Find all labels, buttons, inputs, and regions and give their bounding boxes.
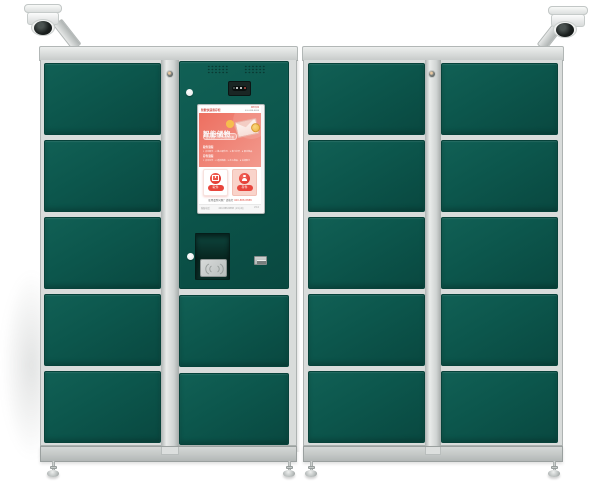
- locker-door[interactable]: [44, 294, 161, 366]
- smart-locker-product-image: 智能快递寄存柜 服务热线 400-888-8888 智能储物: [0, 0, 613, 489]
- screen-brand-text: 智能快递寄存柜: [201, 108, 221, 112]
- base-tab: [425, 447, 441, 455]
- screen-header: 智能快递寄存柜 服务热线 400-888-8888: [199, 106, 261, 113]
- locker-door[interactable]: [308, 217, 425, 289]
- locker-door[interactable]: [441, 140, 558, 212]
- locker-door[interactable]: [308, 63, 425, 135]
- speaker-vent-left: [207, 65, 229, 74]
- notice-text: 使用遇到问题？请拨打: [208, 199, 233, 202]
- screen-hero-banner: 智能储物 安全便捷 · 24小时自助存取 取件流程 1 点击取件 · 2 输入取…: [199, 113, 261, 167]
- right-cabinet-left-door-column: [308, 61, 425, 445]
- locker-door[interactable]: [179, 373, 289, 445]
- deposit-button[interactable]: 存件: [237, 185, 253, 191]
- screen-footer: 客服电话 400-888-8888（24小时） V2.0: [199, 204, 261, 210]
- deposit-steps-label: 存件流程: [203, 154, 257, 158]
- touchscreen[interactable]: 智能快递寄存柜 服务热线 400-888-8888 智能储物: [197, 104, 265, 214]
- deposit-icon-circle: [239, 173, 250, 184]
- locker-door[interactable]: [44, 140, 161, 212]
- speaker-vent-right: [244, 65, 266, 74]
- locker-door[interactable]: [308, 294, 425, 366]
- status-led: [244, 87, 246, 89]
- footer-center: 400-888-8888（24小时）: [218, 206, 245, 210]
- card-slot[interactable]: [254, 256, 267, 265]
- locker-door[interactable]: [308, 140, 425, 212]
- footer-left: 客服电话: [201, 206, 210, 210]
- base-tab: [161, 447, 179, 455]
- led-dot: [236, 87, 238, 89]
- leveling-foot: [282, 461, 296, 478]
- action-cards: 取件 存件: [199, 167, 261, 198]
- keyhole: [429, 71, 435, 77]
- locker-door[interactable]: [179, 295, 289, 367]
- control-column-doors: [179, 289, 289, 446]
- locker-door[interactable]: [441, 63, 558, 135]
- led-dot: [240, 87, 242, 89]
- indicator-dot: [186, 89, 193, 96]
- locker-door[interactable]: [441, 294, 558, 366]
- right-divider-strip: [425, 60, 441, 446]
- help-notice: 使用遇到问题？请拨打 400-888-8888: [199, 198, 261, 204]
- card-slot-opening: [257, 260, 266, 264]
- pickup-steps-label: 取件流程: [203, 145, 257, 149]
- footer-right: V2.0: [254, 206, 259, 209]
- face-camera-module: [228, 81, 251, 96]
- pickup-card[interactable]: 取件: [203, 169, 228, 196]
- indicator-dot: [187, 253, 194, 260]
- screen-tagline: 安全便捷 · 24小时自助存取: [203, 133, 237, 140]
- screen-hotline: 服务热线 400-888-8888: [245, 107, 259, 112]
- locker-door[interactable]: [308, 371, 425, 443]
- leveling-foot: [46, 461, 60, 478]
- nfc-reader-pad[interactable]: [200, 259, 227, 277]
- screen-title-wrap: 智能储物: [203, 121, 231, 129]
- leveling-foot: [547, 461, 561, 478]
- screen-ui: 智能快递寄存柜 服务热线 400-888-8888 智能储物: [199, 106, 261, 210]
- leveling-foot: [304, 461, 318, 478]
- locker-door[interactable]: [441, 371, 558, 443]
- control-panel: 智能快递寄存柜 服务热线 400-888-8888 智能储物: [179, 61, 289, 289]
- camera-led-strip: [232, 86, 248, 92]
- camera-dome-icon: [556, 23, 574, 37]
- nfc-waves-icon: [201, 260, 228, 278]
- locker-door[interactable]: [441, 217, 558, 289]
- pickup-button[interactable]: 取件: [208, 185, 224, 191]
- deposit-card[interactable]: 存件: [232, 169, 257, 196]
- package-icon: [212, 175, 219, 182]
- notice-phone: 400-888-8888: [234, 199, 252, 202]
- locker-door[interactable]: [44, 371, 161, 443]
- keyhole: [167, 71, 173, 77]
- usage-steps: 取件流程 1 点击取件 · 2 输入取件码 · 3 柜门打开 · 4 取走物品 …: [203, 145, 257, 164]
- pickup-steps: 1 点击取件 · 2 输入取件码 · 3 柜门打开 · 4 取走物品: [203, 150, 257, 153]
- right-cabinet-top: [302, 46, 564, 61]
- locker-door[interactable]: [44, 217, 161, 289]
- qr-scanner-bay[interactable]: [195, 233, 230, 280]
- right-cabinet-right-door-column: [441, 61, 558, 445]
- camera-dome-icon: [34, 21, 52, 35]
- left-door-column: [44, 61, 161, 445]
- deposit-steps: 1 点击存件 · 2 选择箱格 · 3 存入物品 · 4 关闭柜门: [203, 159, 257, 162]
- sensor-dot: [233, 87, 235, 89]
- title-accent-dot: [226, 120, 234, 128]
- envelope-seal: [250, 122, 261, 133]
- left-divider-strip: [161, 60, 179, 446]
- pickup-icon-circle: [210, 173, 221, 184]
- courier-icon: [242, 175, 248, 180]
- locker-door[interactable]: [44, 63, 161, 135]
- ambient-shadow: [2, 270, 44, 460]
- left-cabinet-top: [39, 46, 298, 61]
- hotline-number: 400-888-8888: [245, 110, 259, 112]
